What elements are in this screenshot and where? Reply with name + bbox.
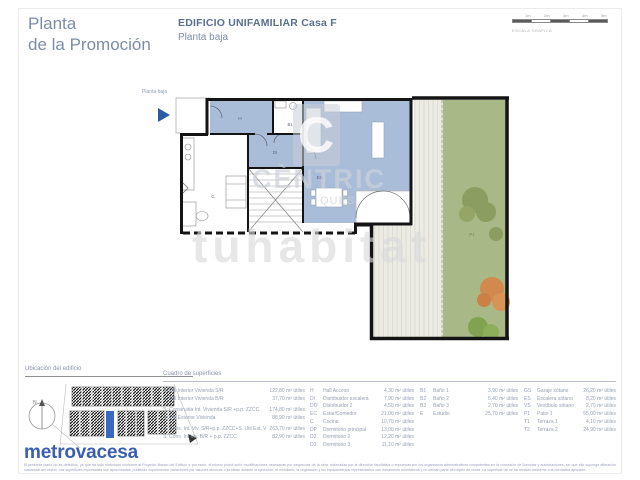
page-title-line1: Planta: [28, 13, 151, 34]
brand-logo: metrovacesa: [24, 442, 138, 464]
room-label-hall: H: [238, 116, 242, 122]
scale-segment: [531, 20, 551, 22]
table-row: DI2Distribuidor 24,50 m² útiles: [310, 403, 414, 411]
scale-tick: 1m: [525, 13, 531, 18]
scale-segment: [551, 20, 569, 22]
scale-tick: 5m: [601, 13, 607, 18]
porch-area: [356, 191, 410, 223]
room-label-bath1: B1: [287, 122, 293, 127]
scale-segment: [513, 20, 531, 22]
table-row: S. Construida Int. Vivienda S/R +p.p. ZZ…: [163, 407, 305, 415]
surfaces-summary-column: S. Útil Interior Vivienda S/R122,80 m² ú…: [163, 388, 305, 442]
sheet-header: EDIFICIO UNIFAMILIAR Casa F Planta baja: [178, 17, 337, 43]
scale-tick-labels: 1m 2m 3m 4m 5m: [512, 13, 608, 19]
floor-plan: Planta baja F P1: [140, 84, 540, 350]
location-label: Ubicación del edificio: [25, 366, 81, 372]
north-compass: N: [29, 399, 55, 429]
table-row: T2Terraza 224,90 m² útiles: [524, 427, 616, 435]
watermark-line2: QUES: [320, 195, 355, 207]
table-row: ESEscalera sótano8,20 m² útiles: [524, 396, 616, 404]
scale-segment: [569, 20, 589, 22]
table-row: B3Baño 32,70 m² útiles: [420, 403, 518, 411]
floor-plan-drawing: Planta baja F P1: [140, 84, 540, 350]
surfaces-baths-column: B1Baño 13,90 m² útiles B2Baño 25,40 m² ú…: [420, 388, 518, 419]
scale-segment: [589, 20, 607, 22]
table-row: DIDistribuidor escalera7,90 m² útiles: [310, 396, 414, 404]
scale-caption: ESCALA GRÁFICA: [512, 28, 608, 33]
room-label-kitchen: C: [211, 194, 215, 200]
table-row: CCocina10,70 m² útiles: [310, 419, 414, 427]
table-row: EEstudio25,70 m² útiles: [420, 411, 518, 419]
table-row: S. Útil Exterior Vivienda88,90 m² útiles: [163, 415, 305, 423]
page-title-line2: de la Promoción: [28, 34, 151, 55]
table-row: S. Útil Interior Vivienda S/R122,80 m² ú…: [163, 388, 305, 396]
north-label: N: [33, 400, 37, 406]
scale-tick: 3m: [563, 13, 569, 18]
terrace-deck: [414, 100, 443, 225]
building-title: EDIFICIO UNIFAMILIAR Casa F: [178, 17, 337, 29]
disclaimer-line2: Las superficies expresadas son aproximad…: [59, 468, 587, 472]
table-row: GSGaraje sótano26,20 m² útiles: [524, 388, 616, 396]
table-row: S. Útil Interior Vivienda B/R37,70 m² út…: [163, 396, 305, 404]
table-row: D3Dormitorio 311,10 m² útiles: [310, 442, 414, 450]
scale-bar: [512, 19, 608, 23]
floor-subtitle: Planta baja: [178, 32, 337, 43]
highlighted-unit: [106, 411, 114, 438]
table-row: S. Cons. Int Viv. B/R + p.p. ZZCC82,90 m…: [163, 434, 305, 442]
room-label-distributor: DI: [273, 150, 278, 156]
surfaces-exterior-column: GSGaraje sótano26,20 m² útiles ESEscaler…: [524, 388, 616, 434]
surfaces-table-title: Cuadro de superficies: [163, 371, 221, 377]
table-row: DPDormitorio principal13,00 m² útiles: [310, 427, 414, 435]
watermark-line1: CÈNTRIC: [252, 163, 386, 194]
plan-floor-label: Planta baja: [142, 89, 167, 95]
watermark-line3: tuhabitat: [192, 220, 431, 272]
legal-disclaimer: El presente plano no es definitivo, ya q…: [24, 463, 616, 472]
table-row: S. Cons. Int. Viv. S/R+p.p. ZZCC+S. Útil…: [163, 426, 305, 434]
surfaces-table-rule: [163, 381, 616, 382]
graphic-scale: 1m 2m 3m 4m 5m ESCALA GRÁFICA: [512, 13, 608, 33]
table-row: T1Terraza 14,10 m² útiles: [524, 419, 616, 427]
unit-arrow-icon: [158, 108, 170, 122]
table-row: D2Dormitorio 212,20 m² útiles: [310, 434, 414, 442]
scale-tick: 2m: [544, 13, 550, 18]
table-row: P1Patio 155,00 m² útiles: [524, 411, 616, 419]
page-title: Planta de la Promoción: [28, 13, 151, 55]
scale-tick: 4m: [582, 13, 588, 18]
table-row: ECEstar/Comedor21,00 m² útiles: [310, 411, 414, 419]
room-label-patio: P1: [469, 232, 475, 237]
table-row: VSVestíbulo sótano2,70 m² útiles: [524, 403, 616, 411]
building-blocks: [70, 387, 176, 438]
table-row: HHall Acceso4,30 m² útiles: [310, 388, 414, 396]
surfaces-rooms-column: HHall Acceso4,30 m² útiles DIDistribuido…: [310, 388, 414, 450]
watermark-logo-letter: C: [298, 107, 334, 163]
table-row: B2Baño 25,40 m² útiles: [420, 396, 518, 404]
table-row: B1Baño 13,90 m² útiles: [420, 388, 518, 396]
